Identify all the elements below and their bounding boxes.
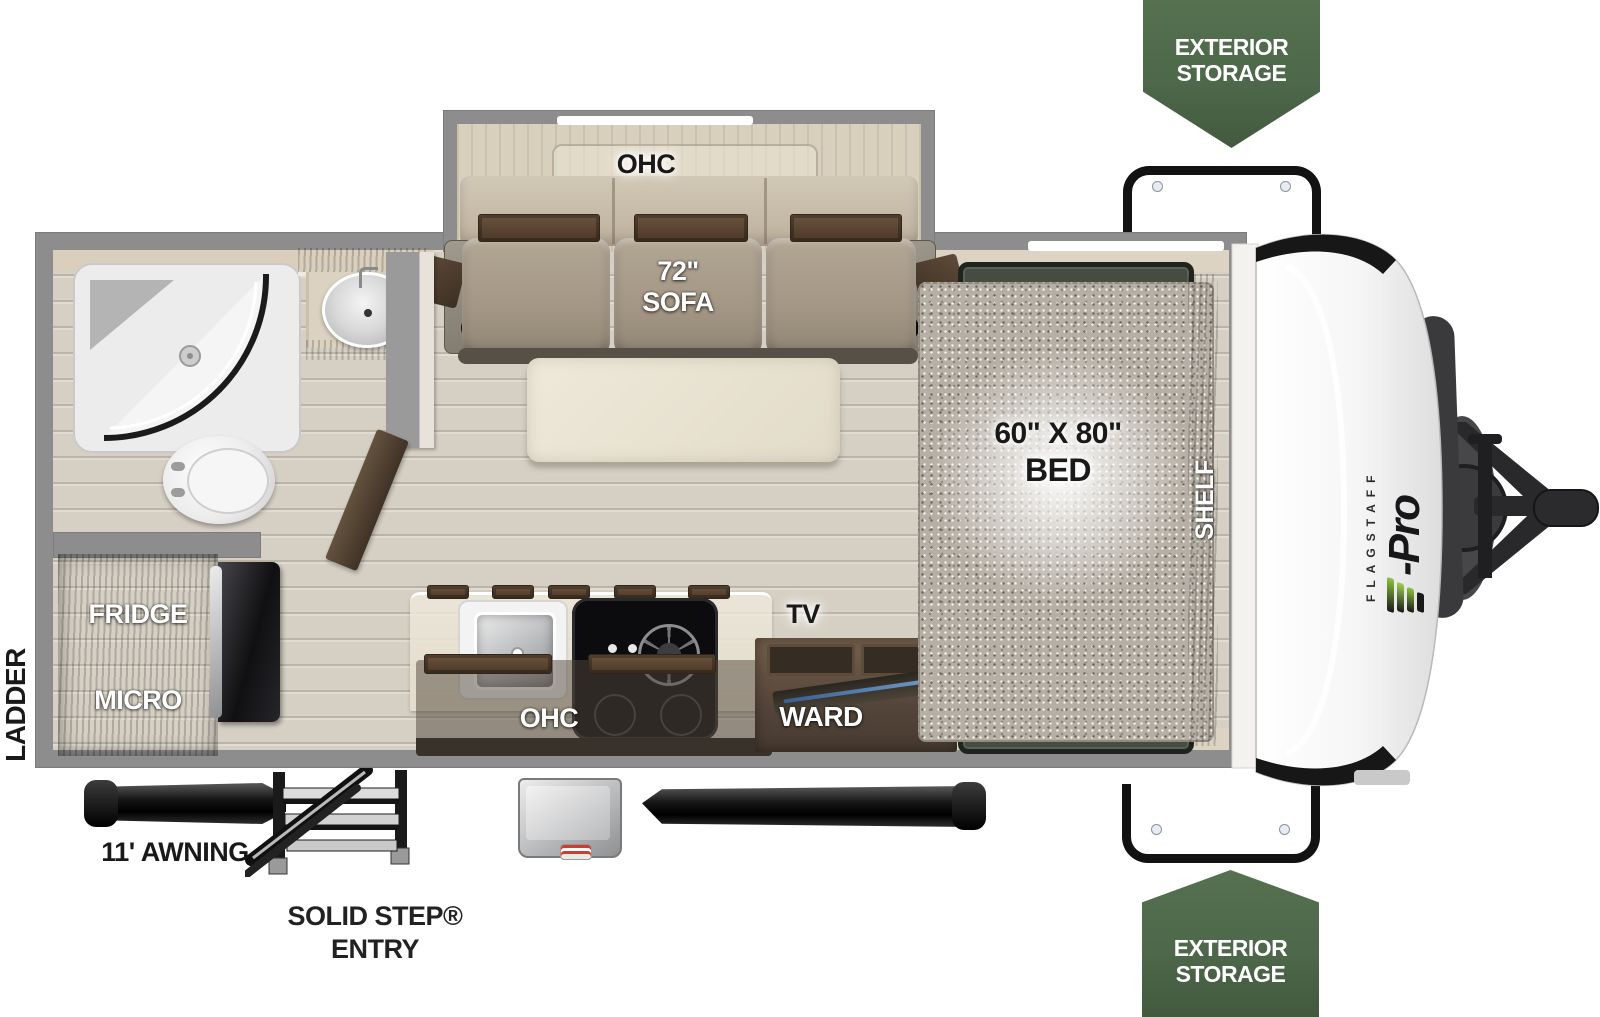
- sofa-back-seam: [612, 178, 615, 244]
- badge-bottom-line1: EXTERIOR: [1174, 935, 1288, 961]
- toilet-hinge-icon: [171, 488, 185, 497]
- screw-icon: [1152, 181, 1163, 192]
- slideout-window: [557, 116, 753, 125]
- kitchen-ohc-ledge: [424, 654, 552, 674]
- front-interior-wall: [1232, 244, 1258, 768]
- awning-roller-right-cap: [952, 782, 986, 830]
- sofa-tray-ledge: [634, 214, 748, 242]
- solid-step-text: SOLID STEP®: [265, 900, 485, 933]
- sofa-seat-cushion: [766, 238, 916, 356]
- bed-mattress: [918, 282, 1214, 742]
- brand-model: -Pro: [1380, 384, 1430, 612]
- tv-text: TV: [786, 599, 820, 629]
- window-top-right: [1028, 241, 1224, 251]
- entry-steps: [245, 762, 445, 877]
- sofa-ohc-text: OHC: [617, 149, 676, 179]
- sofa-ohc-label: OHC: [596, 150, 696, 178]
- kitchen-ohc-label: OHC: [504, 704, 594, 732]
- badge-top-line2: STORAGE: [1175, 60, 1289, 86]
- shelf-text: SHELF: [1191, 460, 1219, 539]
- micro-text: MICRO: [94, 685, 182, 715]
- jack-handle: [1468, 434, 1502, 444]
- cabinet-door-top: [548, 585, 590, 599]
- ladder-text: LADDER: [0, 648, 31, 762]
- cabinet-door-top: [427, 585, 469, 599]
- sofa-tray-ledge: [478, 214, 600, 242]
- micro-label: MICRO: [68, 686, 208, 714]
- knob-icon: [608, 644, 617, 653]
- fridge-micro-cabinet: [58, 554, 218, 756]
- cabinet-door-top: [492, 585, 534, 599]
- bed-size-text: 60" X 80": [958, 416, 1158, 452]
- exterior-storage-badge-top: EXTERIOR STORAGE: [1143, 0, 1320, 148]
- ward-label: WARD: [762, 702, 880, 731]
- awning-label: 11' AWNING: [90, 838, 260, 866]
- kitchen-ohc-ledge: [588, 654, 716, 674]
- floorplan-canvas: EXTERIOR STORAGE EXTERIOR STORAGE: [0, 0, 1600, 1017]
- tv-screen-glint: [783, 679, 928, 703]
- exterior-storage-badge-bottom: EXTERIOR STORAGE: [1142, 870, 1319, 1017]
- wardrobe-bin: [767, 644, 855, 676]
- sofa-text: SOFA: [618, 287, 738, 318]
- fridge-label: FRIDGE: [68, 600, 208, 628]
- sofa-label: 72" SOFA: [618, 256, 738, 318]
- marker-bottom: [1312, 788, 1317, 832]
- toilet-seat: [187, 448, 269, 514]
- window-bottom-right: [1006, 768, 1224, 778]
- cabinet-door-top: [688, 585, 730, 599]
- water-heater: [518, 778, 622, 858]
- jack-post: [1478, 438, 1492, 578]
- fridge-door: [218, 562, 280, 722]
- entry-text: ENTRY: [265, 933, 485, 966]
- badge-bottom-line2: STORAGE: [1174, 961, 1288, 987]
- ladder-label: LADDER: [1, 625, 31, 785]
- cap-bumper-pad: [1354, 770, 1410, 785]
- coupler: [1534, 490, 1598, 526]
- e-stripes-icon: [1387, 578, 1424, 612]
- tv-label: TV: [770, 600, 836, 628]
- water-heater-band: [526, 786, 610, 840]
- toilet-hinge-icon: [171, 462, 185, 471]
- toilet: [163, 436, 275, 524]
- sofa-back-seam: [764, 178, 767, 244]
- table: [527, 358, 840, 462]
- cabinet-door-top: [614, 585, 656, 599]
- badge-top-line1: EXTERIOR: [1175, 34, 1289, 60]
- knob-icon: [628, 644, 637, 653]
- fridge-text: FRIDGE: [88, 599, 187, 629]
- screw-icon: [1151, 824, 1162, 835]
- fridge-hinge: [210, 566, 222, 718]
- sofa-seat-cushion: [462, 238, 610, 356]
- bed-text: BED: [958, 452, 1158, 488]
- marker-top: [1312, 188, 1317, 230]
- sofa-size-text: 72": [618, 256, 738, 287]
- window-bottom-entry: [437, 768, 737, 778]
- awning-roller-right: [642, 786, 972, 827]
- model-suffix: -Pro: [1380, 496, 1430, 576]
- sofa-tray-ledge: [790, 214, 902, 242]
- kitchen-ohc-base: [416, 738, 772, 756]
- sink-drain-icon: [364, 309, 372, 317]
- ward-text: WARD: [779, 701, 863, 732]
- awning-roller-left-cap: [84, 780, 118, 827]
- bed-label: 60" X 80" BED: [958, 416, 1158, 488]
- brand-logo: FLAGSTAFF -Pro: [1366, 384, 1428, 612]
- awning-text: 11' AWNING: [101, 837, 248, 867]
- faucet-icon: [359, 267, 378, 288]
- solid-step-label: SOLID STEP® ENTRY: [265, 900, 485, 966]
- drain-cap-icon: [560, 844, 592, 860]
- shower: [70, 258, 305, 458]
- brand-name: FLAGSTAFF: [1364, 384, 1378, 612]
- bath-wall-stub: [386, 252, 434, 448]
- kitchen-ohc-text: OHC: [520, 703, 579, 733]
